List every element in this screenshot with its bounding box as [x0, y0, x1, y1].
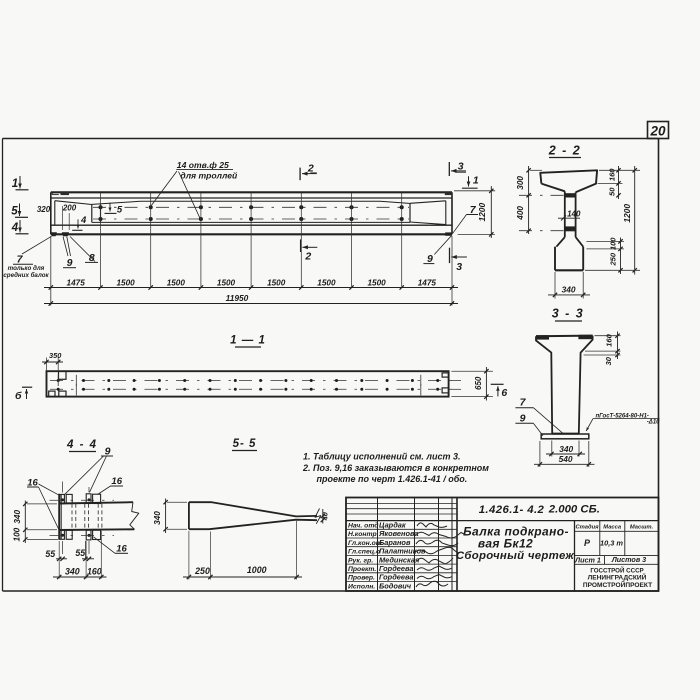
svg-text:1 — 1: 1 — 1 [230, 335, 266, 347]
svg-text:средних балок: средних балок [3, 272, 49, 279]
svg-text:1200: 1200 [622, 204, 632, 223]
svg-text:1500: 1500 [317, 279, 336, 288]
svg-text:Гл.спец.о: Гл.спец.о [348, 549, 380, 556]
svg-text:Лист 1: Лист 1 [574, 555, 601, 564]
svg-text:б: б [15, 390, 22, 402]
svg-text:3 - 3: 3 - 3 [552, 307, 585, 321]
svg-text:4: 4 [11, 222, 19, 234]
svg-text:1.426.1- 4.2: 1.426.1- 4.2 [479, 504, 545, 516]
svg-text:1500: 1500 [167, 279, 186, 288]
svg-text:9: 9 [520, 412, 526, 424]
svg-text:1500: 1500 [217, 279, 236, 288]
svg-text:320: 320 [37, 205, 51, 214]
svg-text:340: 340 [65, 566, 80, 576]
svg-text:100: 100 [12, 527, 21, 541]
svg-text:160: 160 [605, 333, 614, 346]
svg-text:Масса: Масса [603, 525, 622, 531]
svg-text:4: 4 [80, 215, 87, 226]
svg-text:2.000 СБ.: 2.000 СБ. [548, 504, 600, 516]
svg-text:Нач. отд: Нач. отд [348, 522, 378, 530]
svg-text:Гл.кон.от: Гл.кон.от [348, 540, 382, 547]
svg-text:Бодович: Бодович [379, 581, 412, 590]
svg-text:100: 100 [609, 237, 618, 250]
svg-text:Проект.: Проект. [348, 566, 376, 573]
svg-text:1200: 1200 [477, 203, 487, 222]
svg-text:55: 55 [45, 549, 55, 559]
svg-text:250: 250 [608, 252, 617, 266]
svg-text:Рук. гр.: Рук. гр. [348, 557, 373, 564]
svg-text:Цардак: Цардак [379, 521, 407, 530]
svg-text:1500: 1500 [367, 279, 386, 288]
svg-text:40: 40 [321, 511, 330, 521]
svg-text:1475: 1475 [67, 279, 86, 288]
svg-text:Н.контр.: Н.контр. [348, 531, 379, 538]
svg-text:1500: 1500 [267, 279, 286, 288]
svg-text:1. Таблицу исполнений см. лис: 1. Таблицу исполнений см. лист 3. [303, 452, 461, 462]
svg-text:Исполн.: Исполн. [348, 583, 375, 590]
svg-text:Сборочный чертеж: Сборочный чертеж [456, 550, 575, 562]
svg-text:2: 2 [304, 251, 311, 263]
svg-text:340: 340 [153, 511, 162, 525]
svg-text:650: 650 [474, 376, 483, 390]
svg-text:ПРОМСТРОЙПРОЕКТ: ПРОМСТРОЙПРОЕКТ [583, 580, 652, 589]
svg-text:250: 250 [194, 566, 210, 576]
svg-text:5- 5: 5- 5 [233, 438, 257, 450]
svg-text:3: 3 [458, 161, 464, 173]
svg-text:проекте по черт 1.426.1-41 /: проекте по черт 1.426.1-41 / обо. [317, 474, 468, 484]
svg-text:20: 20 [649, 124, 666, 139]
svg-text:11950: 11950 [226, 293, 249, 303]
svg-text:Баранов: Баранов [379, 538, 411, 547]
svg-text:5: 5 [117, 205, 123, 216]
svg-text:1500: 1500 [116, 279, 135, 288]
svg-text:1475: 1475 [418, 279, 437, 288]
svg-text:для троллей: для троллей [180, 171, 238, 181]
svg-text:1000: 1000 [247, 565, 267, 575]
svg-text:14 отв.ф 25: 14 отв.ф 25 [177, 160, 229, 170]
svg-text:ГОССТРОЙ СССР: ГОССТРОЙ СССР [590, 566, 643, 574]
svg-text:4 - 4: 4 - 4 [66, 439, 98, 451]
svg-text:160: 160 [87, 567, 102, 577]
svg-text:Мединская: Мединская [379, 555, 420, 564]
svg-text:2. Поз. 9,16 заказываются в ко: 2. Поз. 9,16 заказываются в конкретном [302, 463, 489, 473]
svg-text:-Δ10: -Δ10 [647, 420, 660, 426]
svg-text:340: 340 [559, 444, 573, 454]
svg-text:Яковенова: Яковенова [378, 529, 419, 538]
svg-text:10,3 т: 10,3 т [600, 539, 623, 548]
svg-text:6: 6 [501, 387, 507, 399]
svg-text:вая Бк12: вая Бк12 [478, 537, 533, 551]
svg-text:3: 3 [456, 261, 462, 273]
svg-text:Гордеева: Гордеева [379, 573, 413, 582]
svg-text:5: 5 [11, 206, 18, 218]
svg-text:1: 1 [12, 178, 18, 190]
svg-text:400: 400 [516, 206, 525, 221]
svg-text:340: 340 [562, 285, 576, 295]
svg-text:340: 340 [13, 510, 22, 524]
svg-text:50: 50 [608, 187, 617, 196]
svg-text:540: 540 [559, 454, 573, 464]
svg-text:Гордеева: Гордеева [379, 564, 413, 573]
svg-text:Стадия: Стадия [575, 525, 599, 531]
svg-text:30: 30 [604, 356, 613, 365]
svg-text:350: 350 [49, 351, 62, 360]
svg-text:300: 300 [516, 176, 525, 190]
svg-text:Провер.: Провер. [348, 575, 375, 582]
svg-text:ЛЕНИНГРАДСКИЙ: ЛЕНИНГРАДСКИЙ [588, 573, 647, 582]
svg-text:1: 1 [473, 174, 479, 186]
svg-text:Масшт.: Масшт. [630, 525, 654, 531]
svg-text:Палатников: Палатников [379, 547, 426, 556]
svg-text:Р: Р [584, 538, 591, 548]
svg-text:2 - 2: 2 - 2 [548, 144, 582, 158]
svg-text:Листов 3: Листов 3 [611, 555, 646, 564]
svg-text:200: 200 [62, 204, 77, 213]
svg-text:160: 160 [607, 168, 616, 181]
svg-text:140: 140 [567, 210, 581, 219]
svg-text:55: 55 [75, 548, 85, 558]
